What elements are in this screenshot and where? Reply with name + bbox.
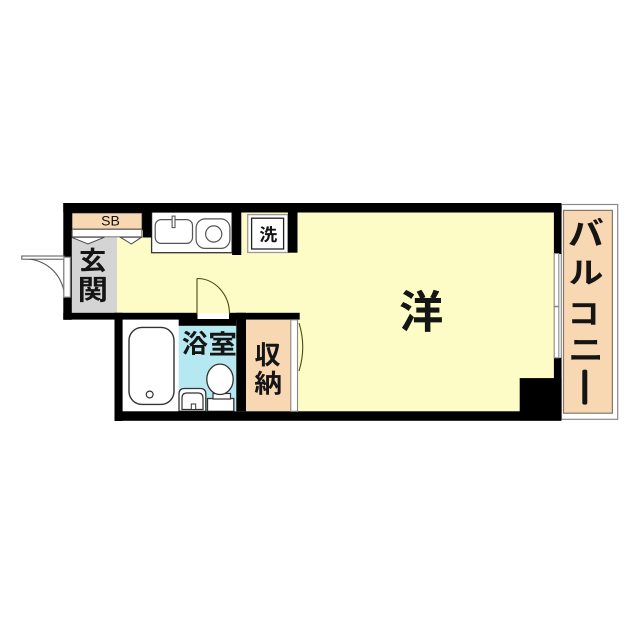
- svg-text:SB: SB: [101, 213, 120, 229]
